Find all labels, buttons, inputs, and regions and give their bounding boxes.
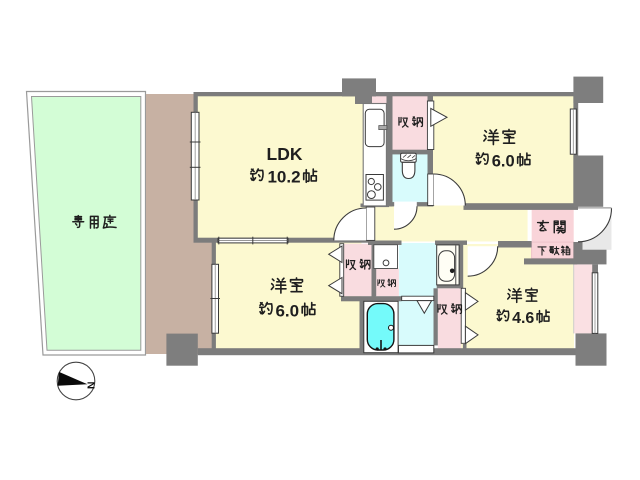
svg-text:10.2: 10.2 (267, 168, 300, 187)
svg-text:6.0: 6.0 (492, 152, 515, 170)
svg-text:4.6: 4.6 (512, 310, 534, 327)
svg-text:6.0: 6.0 (275, 301, 299, 320)
svg-text:N: N (85, 382, 97, 390)
svg-text:LDK: LDK (267, 144, 303, 164)
